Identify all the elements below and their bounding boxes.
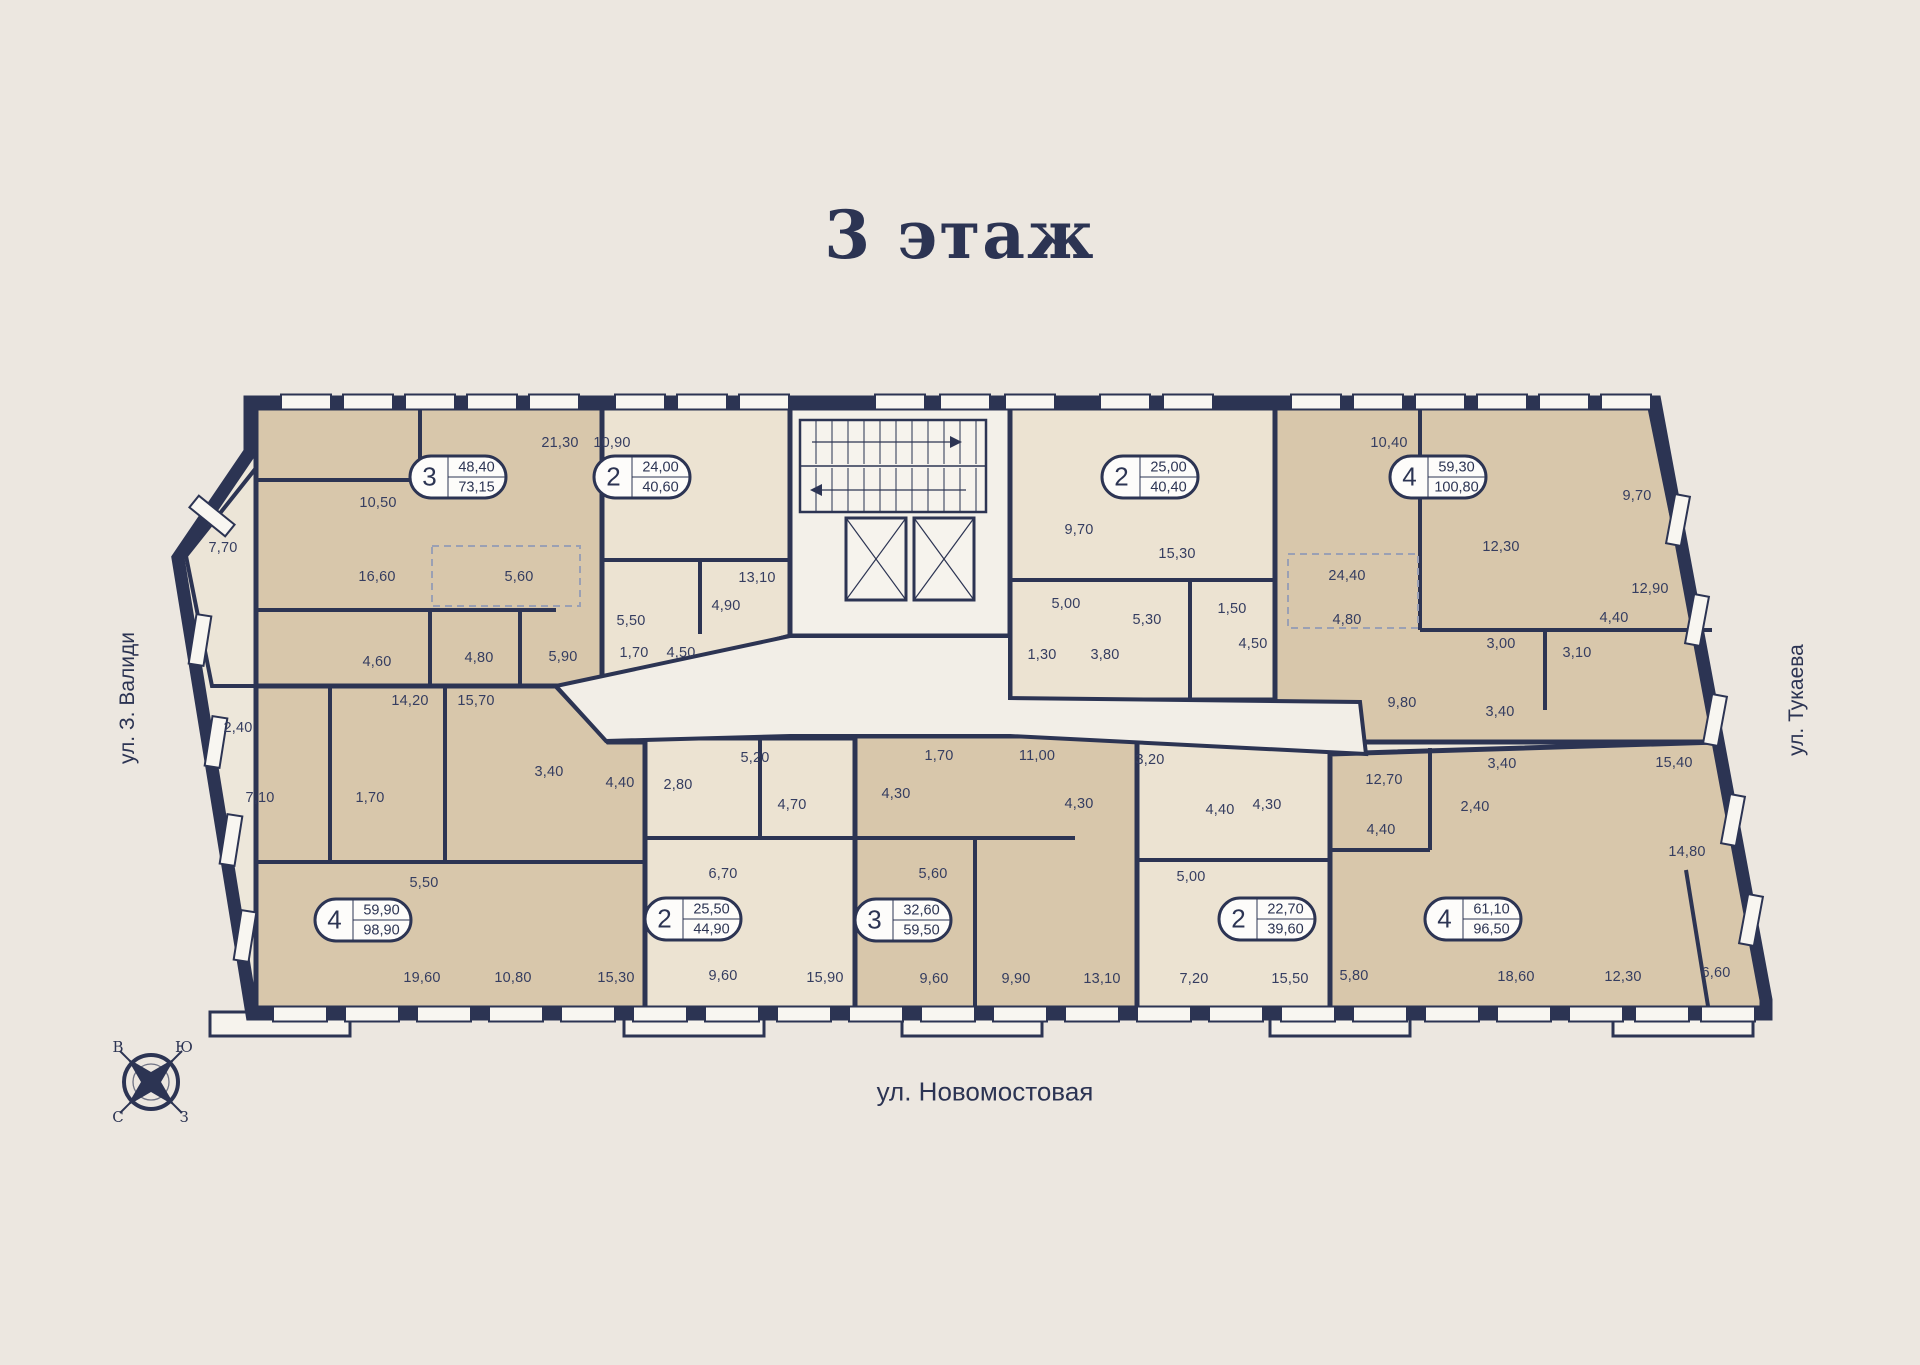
room-dimension: 1,70 <box>924 748 953 764</box>
apartment-living-area: 48,40 <box>449 458 505 478</box>
window <box>1635 1007 1689 1022</box>
room-dimension: 21,30 <box>541 435 578 451</box>
window <box>875 395 925 410</box>
room-dimension: 4,30 <box>1252 797 1281 813</box>
compass-west: З <box>179 1108 188 1126</box>
apartment-badge[interactable]: 348,4073,15 <box>409 455 508 500</box>
room-dimension: 15,50 <box>1271 971 1308 987</box>
window <box>273 1007 327 1022</box>
window <box>281 395 331 410</box>
window <box>1209 1007 1263 1022</box>
window <box>1065 1007 1119 1022</box>
room-dimension: 5,60 <box>918 866 947 882</box>
room-dimension: 10,50 <box>359 495 396 511</box>
room-dimension: 15,90 <box>806 970 843 986</box>
apartment-rooms-count: 2 <box>647 900 684 939</box>
room-dimension: 12,90 <box>1631 581 1668 597</box>
apartment-badge[interactable]: 222,7039,60 <box>1218 897 1317 942</box>
room-dimension: 5,20 <box>740 750 769 766</box>
page-title: 3 этаж <box>824 196 1095 274</box>
room-dimension: 14,20 <box>391 693 428 709</box>
room-dimension: 10,90 <box>593 435 630 451</box>
room-dimension: 4,30 <box>1064 796 1093 812</box>
window <box>1291 395 1341 410</box>
window <box>1163 395 1213 410</box>
window <box>993 1007 1047 1022</box>
room-dimension: 9,70 <box>1622 488 1651 504</box>
compass-rose: В Ю С З <box>96 1035 206 1145</box>
apartment-living-area: 32,60 <box>894 901 950 921</box>
apartment-living-area: 25,00 <box>1141 458 1197 478</box>
apartment-living-area: 25,50 <box>684 900 740 920</box>
apartment-badge[interactable]: 332,6059,50 <box>854 898 953 943</box>
apartment-living-area: 59,30 <box>1429 458 1485 478</box>
room-dimension: 7,70 <box>208 540 237 556</box>
window <box>705 1007 759 1022</box>
apartment-rooms-count: 3 <box>857 901 894 940</box>
window <box>849 1007 903 1022</box>
window <box>633 1007 687 1022</box>
room-dimension: 13,10 <box>1083 971 1120 987</box>
window <box>1415 395 1465 410</box>
room-dimension: 5,60 <box>504 569 533 585</box>
room-dimension: 13,10 <box>738 570 775 586</box>
room-dimension: 12,30 <box>1482 539 1519 555</box>
window <box>417 1007 471 1022</box>
room-dimension: 4,80 <box>1332 612 1361 628</box>
room-dimension: 4,30 <box>881 786 910 802</box>
window <box>739 395 789 410</box>
room-dimension: 19,60 <box>403 970 440 986</box>
apartment-area-4room-bottomleft <box>256 686 645 1008</box>
room-dimension: 24,40 <box>1328 568 1365 584</box>
room-dimension: 5,30 <box>1132 612 1161 628</box>
window <box>1601 395 1651 410</box>
window <box>489 1007 543 1022</box>
apartment-rooms-count: 4 <box>317 901 354 940</box>
room-dimension: 1,30 <box>1027 647 1056 663</box>
room-dimension: 4,50 <box>1238 636 1267 652</box>
room-dimension: 3,20 <box>1135 752 1164 768</box>
room-dimension: 16,60 <box>358 569 395 585</box>
apartment-badge[interactable]: 461,1096,50 <box>1424 897 1523 942</box>
window <box>405 395 455 410</box>
apartment-total-area: 59,50 <box>894 921 950 940</box>
room-dimension: 6,70 <box>708 866 737 882</box>
apartment-total-area: 98,90 <box>354 921 410 940</box>
window <box>1137 1007 1191 1022</box>
room-dimension: 4,40 <box>1205 802 1234 818</box>
room-dimension: 15,70 <box>457 693 494 709</box>
room-dimension: 9,70 <box>1064 522 1093 538</box>
apartment-total-area: 39,60 <box>1258 920 1314 939</box>
window <box>345 1007 399 1022</box>
window <box>343 395 393 410</box>
apartment-total-area: 100,80 <box>1429 478 1485 497</box>
room-dimension: 3,00 <box>1486 636 1515 652</box>
apartment-rooms-count: 4 <box>1427 900 1464 939</box>
room-dimension: 4,40 <box>605 775 634 791</box>
window <box>529 395 579 410</box>
room-dimension: 3,10 <box>1562 645 1591 661</box>
room-dimension: 11,00 <box>1019 748 1055 764</box>
room-dimension: 9,60 <box>919 971 948 987</box>
compass-south: Ю <box>175 1038 193 1056</box>
window <box>1353 1007 1407 1022</box>
room-dimension: 1,50 <box>1217 601 1246 617</box>
window <box>1497 1007 1551 1022</box>
apartment-badge[interactable]: 224,0040,60 <box>593 455 692 500</box>
room-dimension: 12,70 <box>1365 772 1402 788</box>
street-label-left: ул. З. Валиди <box>116 632 140 764</box>
room-dimension: 4,40 <box>1599 610 1628 626</box>
window <box>1005 395 1055 410</box>
room-dimension: 3,80 <box>1090 647 1119 663</box>
apartment-badge[interactable]: 225,5044,90 <box>644 897 743 942</box>
room-dimension: 15,30 <box>597 970 634 986</box>
compass-north: С <box>112 1108 123 1126</box>
room-dimension: 4,80 <box>464 650 493 666</box>
room-dimension: 5,50 <box>616 613 645 629</box>
room-dimension: 5,00 <box>1051 596 1080 612</box>
room-dimension: 18,60 <box>1497 969 1534 985</box>
apartment-total-area: 40,40 <box>1141 478 1197 497</box>
room-dimension: 5,90 <box>548 649 577 665</box>
floor-plan-page: 21,3010,9010,507,7016,605,604,604,805,90… <box>0 0 1920 1365</box>
room-dimension: 3,40 <box>534 764 563 780</box>
room-dimension: 6,60 <box>1701 965 1730 981</box>
apartment-total-area: 40,60 <box>633 478 689 497</box>
window <box>677 395 727 410</box>
room-dimension: 9,80 <box>1387 695 1416 711</box>
room-dimension: 14,80 <box>1668 844 1705 860</box>
room-dimension: 9,90 <box>1001 971 1030 987</box>
apartment-area-2room-bottomright <box>1137 736 1330 1008</box>
window <box>1477 395 1527 410</box>
compass-east: В <box>112 1038 123 1056</box>
room-dimension: 4,70 <box>777 797 806 813</box>
window <box>1539 395 1589 410</box>
room-dimension: 4,40 <box>1366 822 1395 838</box>
street-label-right: ул. Тукаева <box>1785 644 1809 756</box>
window <box>921 1007 975 1022</box>
room-dimension: 9,60 <box>708 968 737 984</box>
apartment-rooms-count: 2 <box>1104 458 1141 497</box>
room-dimension: 2,40 <box>223 720 252 736</box>
apartment-total-area: 96,50 <box>1464 920 1520 939</box>
window <box>615 395 665 410</box>
apartment-badge[interactable]: 459,9098,90 <box>314 898 413 943</box>
window <box>1353 395 1403 410</box>
apartment-rooms-count: 4 <box>1392 458 1429 497</box>
room-dimension: 1,70 <box>355 790 384 806</box>
room-dimension: 1,70 <box>619 645 648 661</box>
window <box>1569 1007 1623 1022</box>
room-dimension: 5,00 <box>1176 869 1205 885</box>
room-dimension: 5,50 <box>409 875 438 891</box>
window <box>561 1007 615 1022</box>
room-dimension: 7,20 <box>1179 971 1208 987</box>
room-dimension: 5,80 <box>1339 968 1368 984</box>
apartment-living-area: 59,90 <box>354 901 410 921</box>
apartment-area-3room-bottom <box>855 736 1137 1008</box>
room-dimension: 3,40 <box>1485 704 1514 720</box>
apartment-living-area: 22,70 <box>1258 900 1314 920</box>
room-dimension: 7,10 <box>245 790 274 806</box>
room-dimension: 3,40 <box>1487 756 1516 772</box>
apartment-total-area: 44,90 <box>684 920 740 939</box>
room-dimension: 12,30 <box>1604 969 1641 985</box>
room-dimension: 10,40 <box>1370 435 1407 451</box>
room-dimension: 2,80 <box>663 777 692 793</box>
apartment-badge[interactable]: 225,0040,40 <box>1101 455 1200 500</box>
room-dimension: 10,80 <box>494 970 531 986</box>
apartment-rooms-count: 3 <box>412 458 449 497</box>
window <box>1425 1007 1479 1022</box>
apartment-living-area: 24,00 <box>633 458 689 478</box>
window <box>1701 1007 1755 1022</box>
street-label-bottom: ул. Новомостовая <box>877 1077 1094 1108</box>
window <box>940 395 990 410</box>
room-dimension: 4,60 <box>362 654 391 670</box>
room-dimension: 4,50 <box>666 645 695 661</box>
apartment-rooms-count: 2 <box>596 458 633 497</box>
room-dimension: 15,40 <box>1655 755 1692 771</box>
apartment-total-area: 73,15 <box>449 478 505 497</box>
window <box>467 395 517 410</box>
room-dimension: 2,40 <box>1460 799 1489 815</box>
apartment-living-area: 61,10 <box>1464 900 1520 920</box>
window <box>1100 395 1150 410</box>
window <box>777 1007 831 1022</box>
apartment-badge[interactable]: 459,30100,80 <box>1389 455 1488 500</box>
room-dimension: 15,30 <box>1158 546 1195 562</box>
window <box>1281 1007 1335 1022</box>
apartment-rooms-count: 2 <box>1221 900 1258 939</box>
room-dimension: 4,90 <box>711 598 740 614</box>
